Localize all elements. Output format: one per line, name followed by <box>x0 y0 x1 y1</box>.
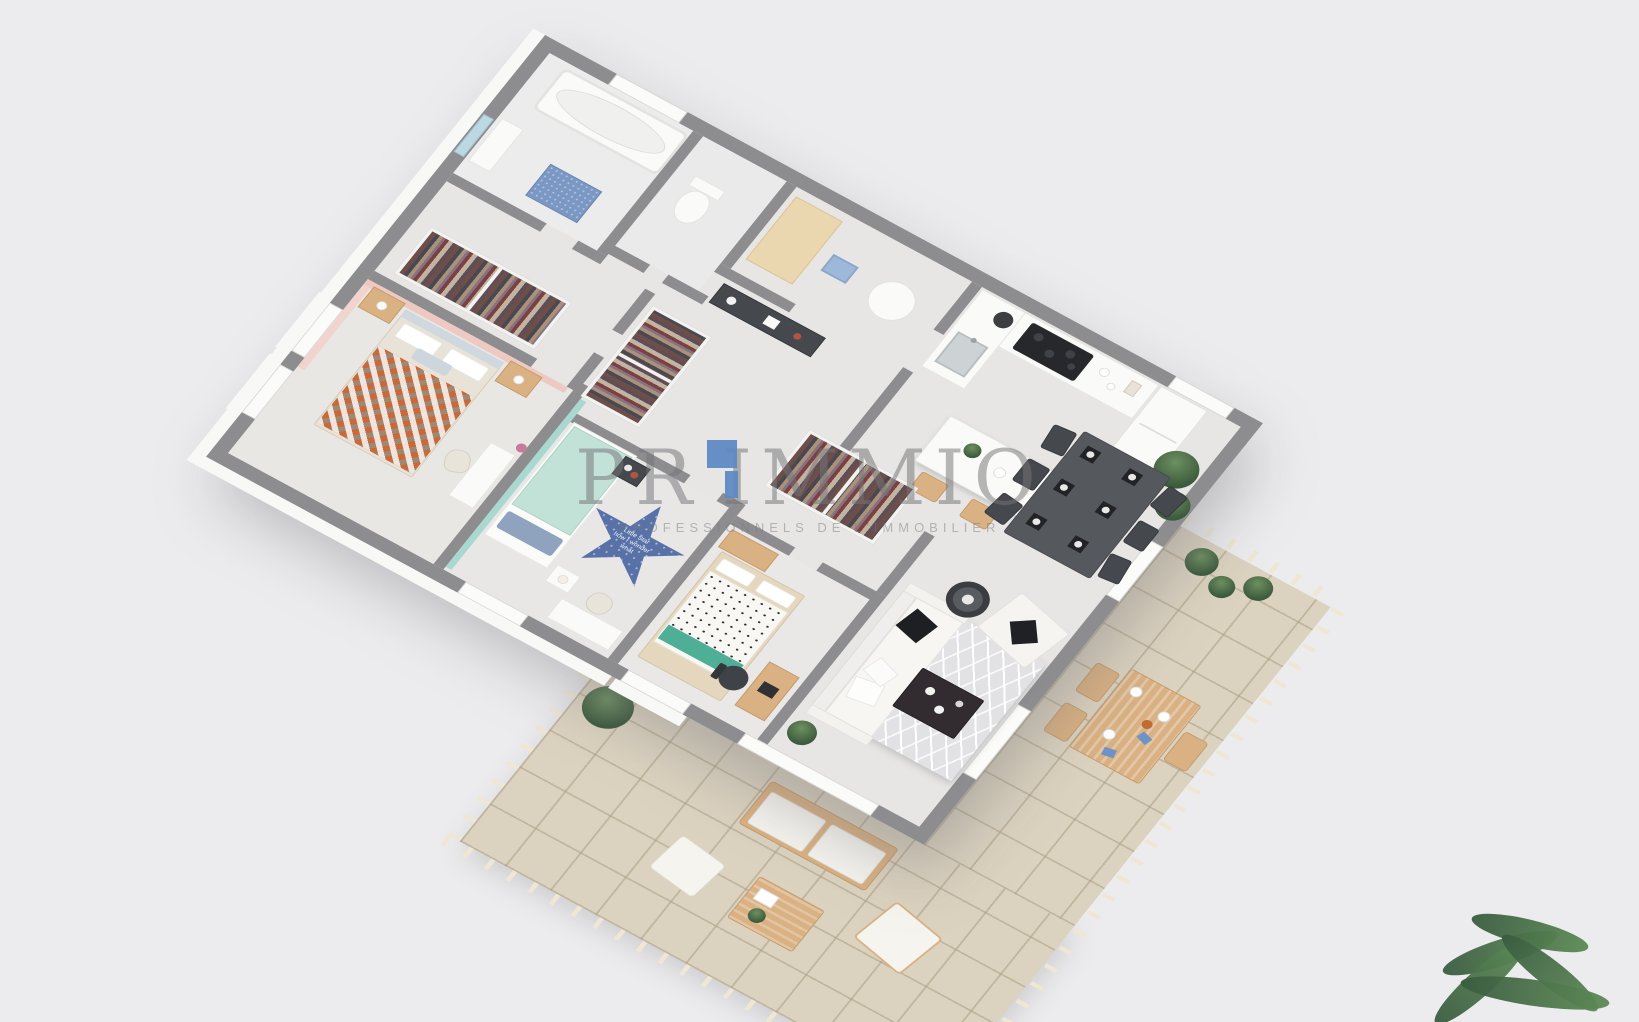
tray <box>753 888 780 909</box>
table-lamp <box>511 374 526 386</box>
laundry-basket <box>820 254 858 284</box>
bathtub-basin <box>546 79 675 164</box>
living-room-plant <box>781 716 823 750</box>
placemat <box>1095 501 1117 519</box>
plate <box>1058 483 1069 492</box>
table-lamp <box>374 300 389 312</box>
plate <box>1031 517 1042 526</box>
console-decor <box>724 295 738 306</box>
hallway-wardrobe <box>581 306 712 428</box>
bath-mat <box>525 164 602 223</box>
kids-nightstand <box>544 564 581 593</box>
scene-background: Little Star how I wonder what <box>0 0 1639 1022</box>
laptop <box>757 681 780 699</box>
placemat <box>1067 535 1089 553</box>
placemat <box>1053 478 1075 496</box>
console-decor <box>792 332 803 341</box>
water-heater <box>858 274 924 329</box>
bedroom3-wardrobe <box>765 430 919 545</box>
wall-segment <box>447 173 547 232</box>
burner <box>1032 332 1046 343</box>
toy-ball <box>629 471 640 480</box>
plate <box>1100 727 1118 742</box>
island-plant <box>960 441 985 461</box>
plate <box>1127 685 1145 700</box>
floor-plan: Little Star how I wonder what <box>28 35 1480 1022</box>
placemat <box>1079 446 1101 464</box>
wall-segment <box>662 275 709 305</box>
napkin <box>1101 747 1117 759</box>
lamp-center <box>960 593 977 607</box>
table-plant <box>744 905 769 925</box>
bowl <box>1139 718 1154 730</box>
napkin <box>1136 732 1152 745</box>
plate <box>1085 450 1096 459</box>
cup <box>923 685 937 696</box>
console-decor <box>762 315 780 330</box>
plate <box>1100 506 1111 515</box>
placemat <box>1121 468 1143 486</box>
plate <box>1073 540 1084 549</box>
placemat <box>1025 513 1047 531</box>
black-pillow <box>1010 620 1038 645</box>
fridge-handle <box>1139 423 1177 444</box>
wall-segment <box>837 367 913 455</box>
burner <box>1066 362 1077 371</box>
plate <box>1127 473 1138 482</box>
burner <box>1042 348 1056 359</box>
corner-palm <box>1380 880 1639 1022</box>
table-lamp <box>555 573 570 585</box>
cup <box>954 699 965 708</box>
burner <box>1063 349 1077 360</box>
plate <box>1155 709 1173 724</box>
cup <box>932 704 946 715</box>
island-bowl <box>991 465 1009 480</box>
nightstand <box>494 360 542 398</box>
